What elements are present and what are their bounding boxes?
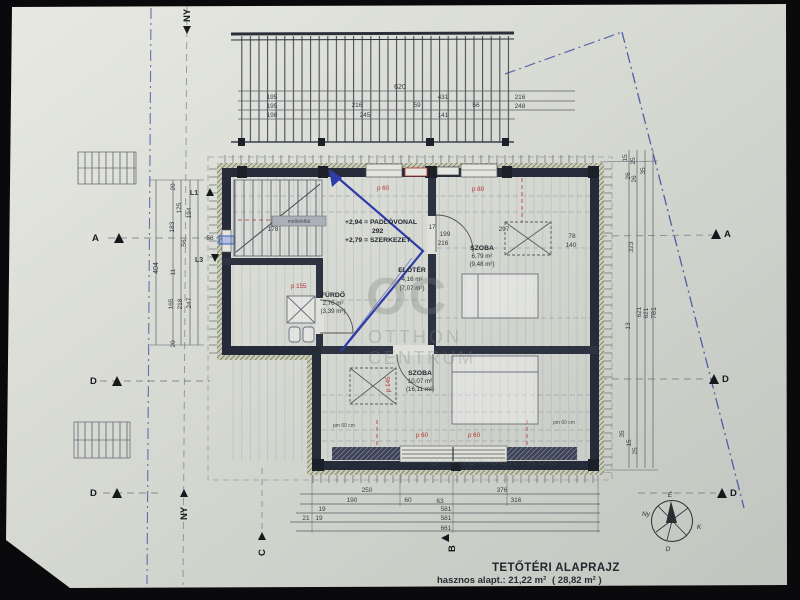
room-area-net: 6,79 m² <box>472 253 493 260</box>
dim-label: 621 <box>643 307 650 318</box>
floor-height-label: 292 <box>372 228 384 235</box>
dim-label: 245 <box>360 112 371 119</box>
axis-a-left-label: A <box>92 233 99 244</box>
dim-label: 60 <box>404 497 412 504</box>
window-tag-red <box>405 168 427 176</box>
dim-label: 20 <box>170 340 177 348</box>
dim-label: 11 <box>170 268 177 275</box>
purlin-marker <box>238 138 245 146</box>
pm60-right-label: pm 60 cm <box>553 420 575 426</box>
dim-label: 190 <box>347 497 358 504</box>
washbasin <box>303 327 314 342</box>
dim-label: 20 <box>170 183 177 191</box>
room-area-net: 2,70 m² <box>323 300 344 307</box>
room-name: SZOBA <box>408 370 432 377</box>
dim-label: 194 <box>186 207 193 218</box>
terrace-hatch-upper <box>78 152 136 184</box>
p60-bottom1-label: p 60 <box>416 432 429 439</box>
dim-label: 125 <box>176 202 183 213</box>
axis-ny-top-label: NY <box>182 8 193 22</box>
dim-label: 404 <box>153 262 160 274</box>
dim-label: 59 <box>413 102 421 109</box>
room-area-net: 4,16 m² <box>402 276 423 283</box>
dim-label: 58 <box>206 235 214 242</box>
room-label-szoba-top: SZOBA 6,79 m² (9,48 m²) <box>469 245 494 268</box>
dim-label: 25 <box>630 157 637 165</box>
p60-bottom2-label: p 60 <box>468 432 481 439</box>
room-area-gross: (7,07 m²) <box>399 285 424 292</box>
photo-frame: OC OTTHON CENTRUM OTTHON CENTRUM ELŐTÉR … <box>0 0 800 600</box>
p145-label: p 145 <box>385 376 392 392</box>
room-label-szoba-bottom: SZOBA 10,07 m² (16,11 m²) <box>406 370 434 393</box>
knee-wall-slab <box>332 447 400 460</box>
room-name: SZOBA <box>470 245 494 252</box>
room-name: FÜRDŐ <box>321 290 345 299</box>
dim-label: 17 <box>428 224 436 231</box>
room-area-gross: (16,11 m²) <box>406 386 434 393</box>
p155-label: p 155 <box>291 283 307 290</box>
watermark-small-line2: CENTRUM <box>490 456 559 468</box>
floorplan-drawing: OC OTTHON CENTRUM OTTHON CENTRUM ELŐTÉR … <box>0 0 800 600</box>
dim-label: 316 <box>511 497 522 504</box>
dim-label: 620 <box>394 84 406 91</box>
parapet-wall-label: mellvédfal <box>288 219 311 225</box>
drawing-title: TETŐTÉRI ALAPRAJZ <box>492 561 620 574</box>
dim-label: 25 <box>632 447 639 455</box>
dim-label: 35 <box>619 430 626 438</box>
dim-label: 165 <box>168 298 175 309</box>
bed-top-room <box>462 274 538 318</box>
dim-label: 178 <box>268 226 279 233</box>
dim-label: 13 <box>625 322 632 330</box>
dim-label: 195 <box>267 103 278 110</box>
dim-label: 26 <box>631 175 638 183</box>
dim-label: 621 <box>636 306 643 317</box>
structure-line-label: +2,79 = SZERKEZET <box>345 237 411 244</box>
room-area-gross: (9,48 m²) <box>469 261 494 268</box>
room-area-gross: (3,39 m²) <box>320 308 345 315</box>
watermark-small-line1: OTTHON <box>430 456 488 468</box>
dim-label: 195 <box>267 94 278 101</box>
dim-label: 56 <box>472 102 480 109</box>
p80-top-label: p 80 <box>472 186 485 193</box>
compass-south-label: D <box>666 546 671 553</box>
compass-east-label: K <box>697 524 702 531</box>
purlin-marker <box>426 138 434 146</box>
dim-label: 661 <box>441 525 452 532</box>
dim-label: 216 <box>438 240 449 247</box>
dim-label: 15 <box>622 154 629 162</box>
dim-label: 218 <box>177 298 184 309</box>
dim-label: 63 <box>436 498 444 505</box>
room-label-eloter: ELŐTÉR 4,16 m² (7,07 m²) <box>398 265 426 292</box>
axis-d-right2-label: D <box>730 488 737 499</box>
useful-area-label: hasznos alapt.: 21,22 m² <box>437 575 546 586</box>
dim-label: 323 <box>628 241 635 252</box>
dim-label: 19 <box>318 506 326 513</box>
axis-c-label: C <box>257 549 268 556</box>
pm60-left-label: pm 60 cm <box>333 423 355 429</box>
dim-label: 297 <box>499 226 510 233</box>
dim-label: 56 <box>181 239 188 247</box>
axis-d-left2-label: D <box>90 488 97 499</box>
dim-label: 21 <box>302 515 310 522</box>
gross-area-label: ( 28,82 m² ) <box>552 575 602 586</box>
dim-label: 216 <box>515 94 526 101</box>
terrace-hatch-lower <box>74 422 130 458</box>
dim-label: 781 <box>651 307 658 319</box>
toilet <box>289 327 300 342</box>
dim-label: 35 <box>640 167 647 175</box>
dim-label: 78 <box>568 233 576 240</box>
dim-label: 15 <box>626 439 633 447</box>
axis-d-left1-label: D <box>90 376 97 387</box>
floor-line-label: +2,94 = PADLÓVONAL <box>345 217 417 226</box>
dim-label: 216 <box>352 102 363 109</box>
level-l1-label: L1 <box>190 190 198 197</box>
dim-label: 431 <box>438 94 449 101</box>
dim-label: 199 <box>440 231 451 238</box>
dim-label: 183 <box>169 221 176 232</box>
roof-rafter-band <box>231 33 514 146</box>
axis-b-label: B <box>447 545 458 552</box>
axis-a-right-label: A <box>724 229 731 240</box>
dim-label: 581 <box>441 506 452 513</box>
staircase <box>234 180 326 256</box>
dim-label: 250 <box>362 487 373 494</box>
dim-label: 198 <box>267 112 278 119</box>
compass-north-label: É <box>668 490 673 499</box>
watermark-small: OTTHON CENTRUM <box>430 456 559 468</box>
room-label-furdo: FÜRDŐ 2,70 m² (3,39 m²) <box>320 290 345 315</box>
level-l3-label: L3 <box>195 257 203 264</box>
window-tag <box>437 167 459 175</box>
axis-d-right1-label: D <box>722 374 729 385</box>
compass-west-label: Ny <box>642 511 651 518</box>
room-name: ELŐTÉR <box>398 265 426 274</box>
watermark-line1: OTTHON <box>368 327 462 347</box>
dim-label: 248 <box>515 103 526 110</box>
purlin-marker <box>502 138 509 146</box>
dim-label: 141 <box>438 112 449 119</box>
dim-label: 19 <box>315 515 323 522</box>
dim-label: 247 <box>186 297 193 308</box>
room-area-net: 10,07 m² <box>408 378 432 385</box>
dim-label: 376 <box>497 487 508 494</box>
p60-top-label: p 60 <box>377 185 390 192</box>
purlin-marker <box>318 138 325 146</box>
dim-label: 140 <box>566 242 577 249</box>
watermark-line2: CENTRUM <box>368 348 476 368</box>
dim-label: 581 <box>441 515 452 522</box>
axis-ny-bottom-label: NY <box>179 506 190 520</box>
